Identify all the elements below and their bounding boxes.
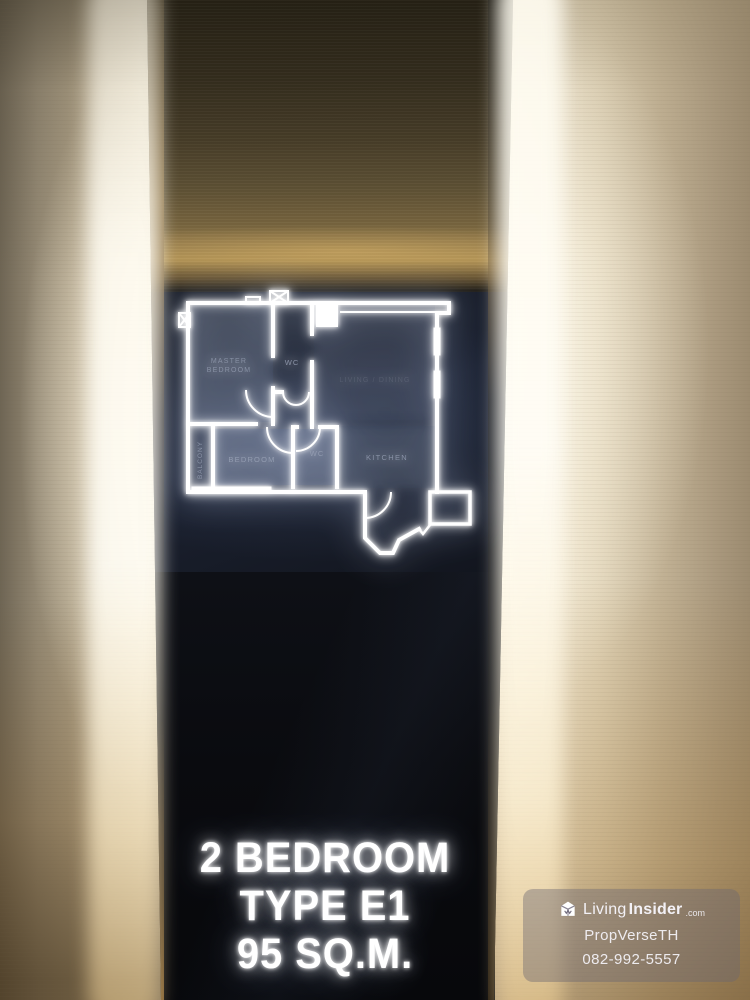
- room-label-living-dining: LIVING / DINING: [339, 377, 410, 384]
- watermark-account: PropVerseTH: [523, 927, 740, 944]
- watermark-brand-light: Living: [583, 901, 627, 919]
- sign-text: 2 BEDROOM TYPE E1 95 SQ.M.: [169, 834, 481, 978]
- window-symbol-icon: [246, 297, 260, 303]
- watermark-brand-row: Living Insider .com: [523, 900, 740, 920]
- watermark-phone: 082-992-5557: [523, 951, 740, 968]
- wall-right-shading: [495, 0, 750, 1000]
- wall-left-shading: [0, 0, 170, 1000]
- sign-line-2: TYPE E1: [169, 882, 481, 930]
- wall-left-texture: [0, 0, 170, 1000]
- watermark: Living Insider .com PropVerseTH 082-992-…: [523, 889, 740, 982]
- wall-right-texture: [495, 0, 750, 1000]
- wall-right: [495, 0, 750, 1000]
- room-label-bedroom: BEDROOM: [228, 455, 275, 464]
- room-label-wc-top: WC: [285, 358, 300, 367]
- room-label-balcony: BALCONY: [197, 441, 204, 479]
- sign-line-3: 95 SQ.M.: [169, 930, 481, 978]
- wall-left: [0, 0, 170, 1000]
- room-label-wc-bottom: WC: [310, 449, 325, 458]
- room-label-master-line1: MASTER: [211, 358, 247, 365]
- watermark-brand-bold: Insider: [629, 901, 683, 919]
- room-label-master-line2: BEDROOM: [207, 367, 252, 374]
- watermark-brand-tld: .com: [685, 908, 705, 918]
- sign-line-1: 2 BEDROOM: [169, 834, 481, 882]
- floorplan-diagram: MASTER BEDROOM WC LIVING / DINING BALCON…: [170, 284, 480, 570]
- room-label-kitchen: KITCHEN: [366, 453, 408, 462]
- livinginsider-logo-icon: [558, 900, 578, 920]
- hallway-photo: MASTER BEDROOM WC LIVING / DINING BALCON…: [0, 0, 750, 1000]
